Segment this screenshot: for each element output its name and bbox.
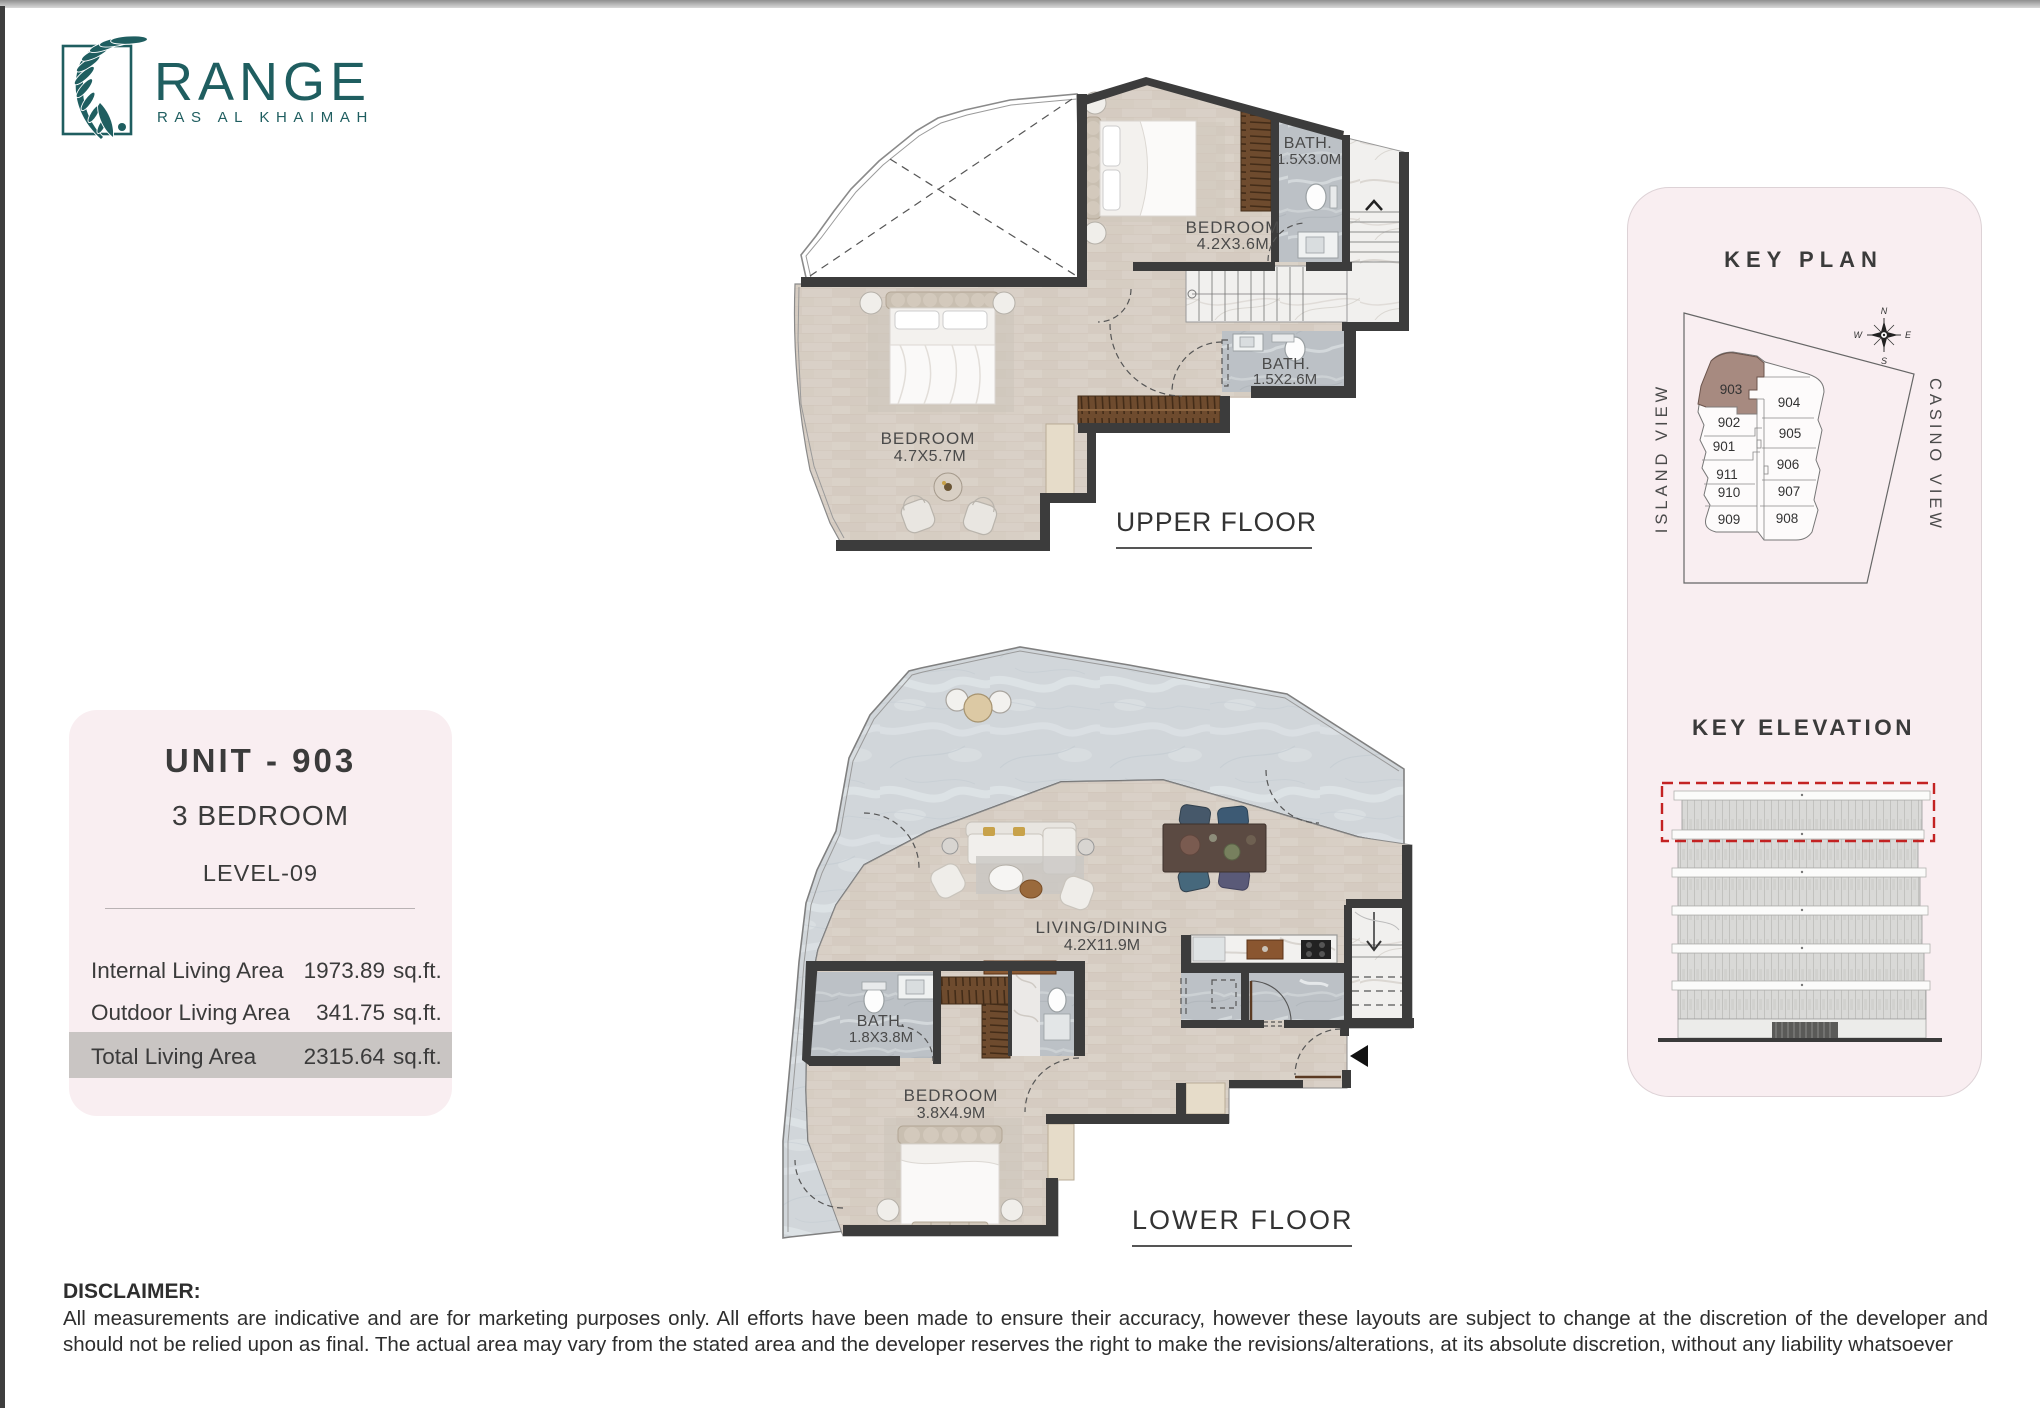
- svg-text:901: 901: [1713, 439, 1736, 454]
- svg-text:902: 902: [1718, 415, 1741, 430]
- svg-text:1.5X3.0M: 1.5X3.0M: [1277, 151, 1341, 168]
- svg-text:911: 911: [1716, 467, 1738, 482]
- svg-text:BATH.: BATH.: [1284, 135, 1332, 152]
- svg-text:BEDROOM: BEDROOM: [881, 429, 976, 448]
- svg-text:E: E: [1905, 330, 1912, 340]
- svg-text:LIVING/DINING: LIVING/DINING: [1036, 918, 1169, 937]
- svg-text:W: W: [1854, 330, 1864, 340]
- svg-text:BEDROOM: BEDROOM: [904, 1086, 999, 1105]
- svg-text:BEDROOM: BEDROOM: [1186, 218, 1281, 237]
- svg-text:908: 908: [1776, 511, 1799, 526]
- svg-text:4.2X3.6M: 4.2X3.6M: [1197, 236, 1269, 253]
- svg-text:N: N: [1881, 306, 1888, 316]
- svg-text:BATH.: BATH.: [857, 1013, 905, 1030]
- svg-text:RANGE: RANGE: [154, 52, 371, 112]
- svg-text:910: 910: [1718, 485, 1741, 500]
- svg-text:909: 909: [1718, 512, 1741, 527]
- svg-text:4.7X5.7M: 4.7X5.7M: [894, 448, 966, 465]
- svg-text:904: 904: [1778, 395, 1801, 410]
- svg-text:RAS AL KHAIMAH: RAS AL KHAIMAH: [157, 109, 374, 126]
- svg-text:3.8X4.9M: 3.8X4.9M: [917, 1105, 985, 1122]
- svg-text:1.8X3.8M: 1.8X3.8M: [849, 1029, 913, 1046]
- svg-text:905: 905: [1779, 426, 1802, 441]
- svg-text:ISLAND VIEW: ISLAND VIEW: [1653, 383, 1671, 533]
- svg-text:903: 903: [1720, 382, 1743, 397]
- svg-text:4.2X11.9M: 4.2X11.9M: [1064, 937, 1140, 954]
- svg-text:1.5X2.6M: 1.5X2.6M: [1253, 371, 1317, 388]
- svg-text:S: S: [1881, 356, 1887, 366]
- svg-text:906: 906: [1777, 457, 1800, 472]
- svg-text:907: 907: [1778, 484, 1801, 499]
- svg-text:CASINO VIEW: CASINO VIEW: [1926, 378, 1944, 532]
